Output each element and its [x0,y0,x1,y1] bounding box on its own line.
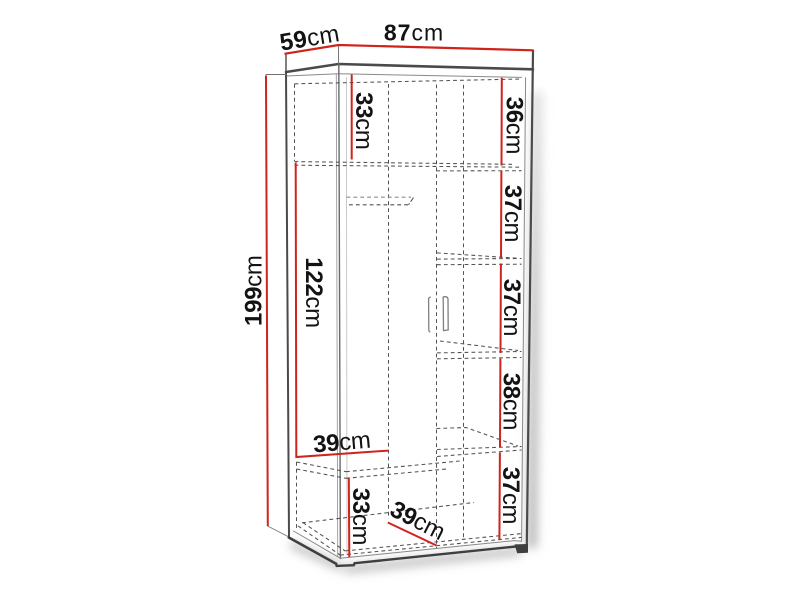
svg-text:33cm: 33cm [347,488,374,546]
svg-text:37cm: 37cm [497,467,524,525]
svg-text:59cm: 59cm [278,20,342,57]
svg-text:37cm: 37cm [499,185,526,243]
svg-text:39cm: 39cm [386,496,450,546]
svg-text:38cm: 38cm [498,373,525,431]
svg-text:122cm: 122cm [300,257,327,328]
svg-text:39cm: 39cm [312,427,372,459]
svg-text:33cm: 33cm [350,92,377,150]
svg-text:37cm: 37cm [498,279,525,337]
svg-text:87cm: 87cm [384,20,444,46]
svg-text:199cm: 199cm [241,255,268,326]
svg-text:36cm: 36cm [500,97,527,155]
